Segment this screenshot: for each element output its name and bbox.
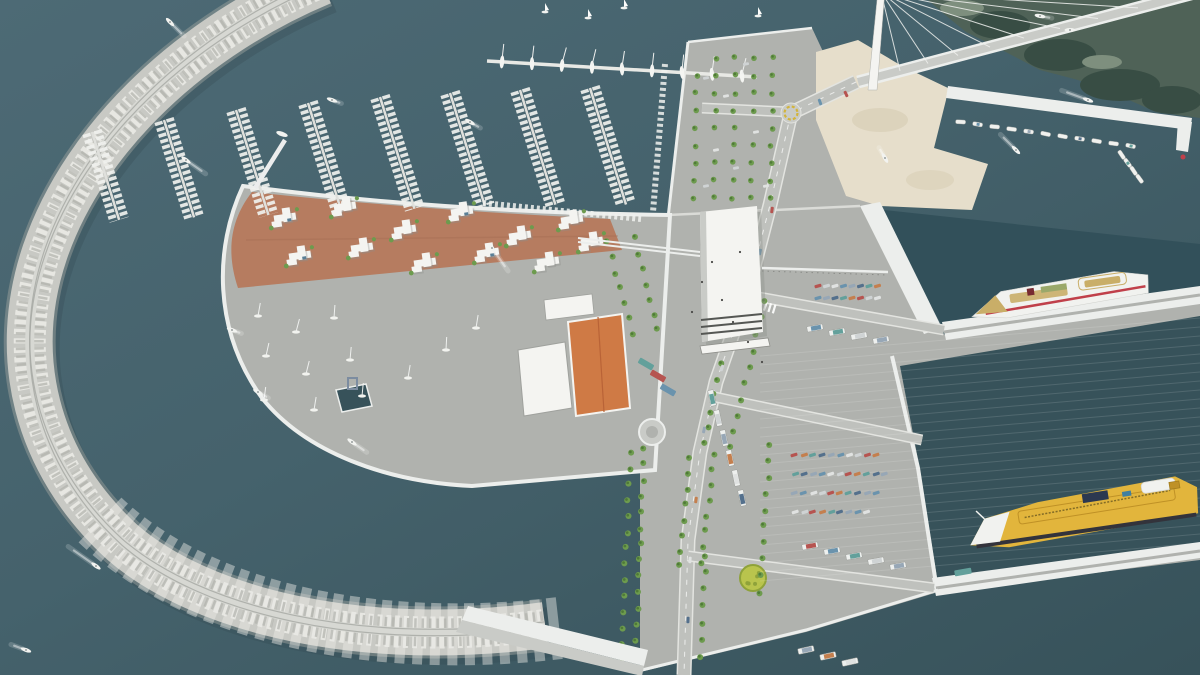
skylight [287,218,291,222]
tree-crown [768,144,771,147]
boat-cabin [331,99,333,101]
tree-crown [736,414,739,417]
tree-crown [712,92,715,95]
tree-crown [714,109,717,112]
tree-crown [677,563,680,566]
tree-crown [694,145,697,148]
port-aerial-rendering [0,0,1200,675]
tree-crown [752,75,755,78]
tree-crown [701,586,704,589]
tree-crown [686,472,689,475]
tree-crown [764,492,767,495]
tree-crown [618,285,621,288]
boat-cabin [25,649,27,651]
boat-cabin [1087,99,1089,101]
tree-crown [693,126,696,129]
boat-cabin [1039,15,1041,17]
tree-crown [699,561,702,564]
tree-crown [731,109,734,112]
tree-crown [636,573,639,576]
tree-crown [639,509,642,512]
tree-crown [644,283,647,286]
pedestrian [739,251,741,253]
tree-crown [751,143,754,146]
tree-crown [639,541,642,544]
pedestrian [691,311,693,313]
tree-crown [700,638,703,641]
tree-crown [712,452,715,455]
skylight [464,212,468,216]
tree-crown [628,467,631,470]
fishing-boat-cabin [1078,137,1081,140]
tree-crown [701,545,704,548]
grass-circle [740,565,766,591]
grass-tuft [745,581,749,585]
car [686,617,689,624]
boat-cabin [95,565,97,567]
boat-cabin [185,159,187,161]
car [688,557,691,564]
tree-crown [647,298,650,301]
tree-crown [686,488,689,491]
sailboat-mast [446,337,447,350]
tree-crown [761,523,764,526]
tree-crown [732,55,735,58]
sailboat-hull [621,7,628,10]
pedestrian [732,321,734,323]
sailboat-hull [585,17,592,20]
tree-crown [691,197,694,200]
tree-crown [652,313,655,316]
tree-crown [770,161,773,164]
coast-rock-light [1082,55,1122,69]
tree-crown [639,495,642,498]
tree-crown [712,195,715,198]
tree-crown [766,459,769,462]
tree-crown [712,178,715,181]
tree-crown [770,73,773,76]
boat-cabin [257,391,259,393]
pedestrian [701,281,703,283]
ferry2-funnel [1169,481,1180,489]
tree-crown [694,109,697,112]
roundabout-south-center [646,426,658,438]
skylight [302,256,306,260]
tree-crown [624,545,627,548]
boat-cabin [231,329,233,331]
tree-crown [683,501,686,504]
tree-crown [733,126,736,129]
tree-crown [709,467,712,470]
tree-crown [627,315,630,318]
tree-crown [715,57,718,60]
tree-crown [767,443,770,446]
pedestrian [747,341,749,343]
tree-crown [706,425,709,428]
harbor-scene [0,0,1200,675]
boat-cabin [884,157,886,159]
boat-cabin [351,441,353,443]
tree-crown [622,561,625,564]
tree-crown [700,622,703,625]
tree-crown [709,483,712,486]
tree-crown [696,74,699,77]
tree-crown [767,476,770,479]
pedestrian [711,261,713,263]
tree-crown [771,109,774,112]
tree-crown [712,126,715,129]
tree-crown [733,92,736,95]
tree-crown [634,623,637,626]
boat-cabin [491,247,493,249]
tree-crown [713,160,716,163]
fishing-boat [956,120,966,125]
tree-crown [708,411,711,414]
tree-crown [698,655,701,658]
pedestrian [721,299,723,301]
tree-crown [731,429,734,432]
tree-crown [633,639,636,642]
tree-crown [680,533,683,536]
tree-crown [700,603,703,606]
pedestrian [761,361,763,363]
tree-crown [637,557,640,560]
tree-crown [693,90,696,93]
tree-crown [641,266,644,269]
pier-beacon [1181,155,1186,160]
tree-crown [757,591,760,594]
fishing-boat-cabin [1027,130,1030,133]
tree-crown [625,498,628,501]
tree-crown [613,272,616,275]
warehouse-white [518,342,572,416]
tree-crown [703,554,706,557]
tree-crown [623,578,626,581]
sailboat-hull [755,15,762,18]
sand-shading [852,108,908,132]
tree-crown [739,398,742,401]
tree-crown [771,127,774,130]
boat-cabin [169,21,171,23]
tree-crown [682,519,685,522]
tree-crown [748,365,751,368]
tree-crown [715,378,718,381]
tree-crown [732,143,735,146]
tree-crown [694,162,697,165]
tree-crown [769,196,772,199]
tree-crown [621,627,624,630]
tree-crown [638,527,641,530]
tree-crown [752,90,755,93]
tree-crown [719,361,722,364]
tree-crown [702,441,705,444]
tree-crown [760,556,763,559]
tree-crown [622,593,625,596]
tree-crown [636,607,639,610]
tree-crown [626,531,629,534]
tree-crown [678,550,681,553]
tree-crown [752,109,755,112]
tree-crown [749,179,752,182]
tree-crown [633,235,636,238]
tree-crown [704,515,707,518]
tree-crown [626,482,629,485]
tree-crown [763,509,766,512]
boat-cabin [1069,29,1071,31]
sand-shading [906,170,954,190]
tree-crown [749,195,752,198]
fishing-boat [989,124,999,129]
tree-crown [770,92,773,95]
sailboat-hull [542,11,549,14]
tree-crown [687,456,690,459]
tree-crown [636,253,639,256]
tree-crown [655,327,658,330]
tree-crown [728,445,731,448]
tree-crown [752,56,755,59]
tree-crown [749,161,752,164]
tree-crown [759,573,762,576]
tree-crown [771,55,774,58]
fishing-boat-cabin [976,123,979,126]
coast-rock-dark [1142,86,1200,114]
tree-crown [631,332,634,335]
tree-crown [622,301,625,304]
ferry1-funnel [1027,288,1035,296]
tree-crown [642,479,645,482]
tree-crown [714,74,717,77]
grass-tuft [753,582,757,586]
tree-crown [734,73,737,76]
tree-crown [626,514,629,517]
coast-rock-dark [1024,39,1096,71]
tree-crown [732,178,735,181]
tree-crown [708,499,711,502]
tree-crown [611,254,614,257]
boat-cabin [1015,149,1017,151]
tree-crown [731,160,734,163]
tree-crown [692,179,695,182]
tree-crown [621,610,624,613]
tree-crown [751,350,754,353]
tree-crown [704,570,707,573]
tree-crown [641,446,644,449]
tree-crown [768,179,771,182]
tree-crown [762,540,765,543]
boat-cabin [469,121,471,123]
tree-crown [742,381,745,384]
tree-crown [641,461,644,464]
tree-crown [629,451,632,454]
tree-crown [703,528,706,531]
tree-crown [636,590,639,593]
tree-crown [730,197,733,200]
